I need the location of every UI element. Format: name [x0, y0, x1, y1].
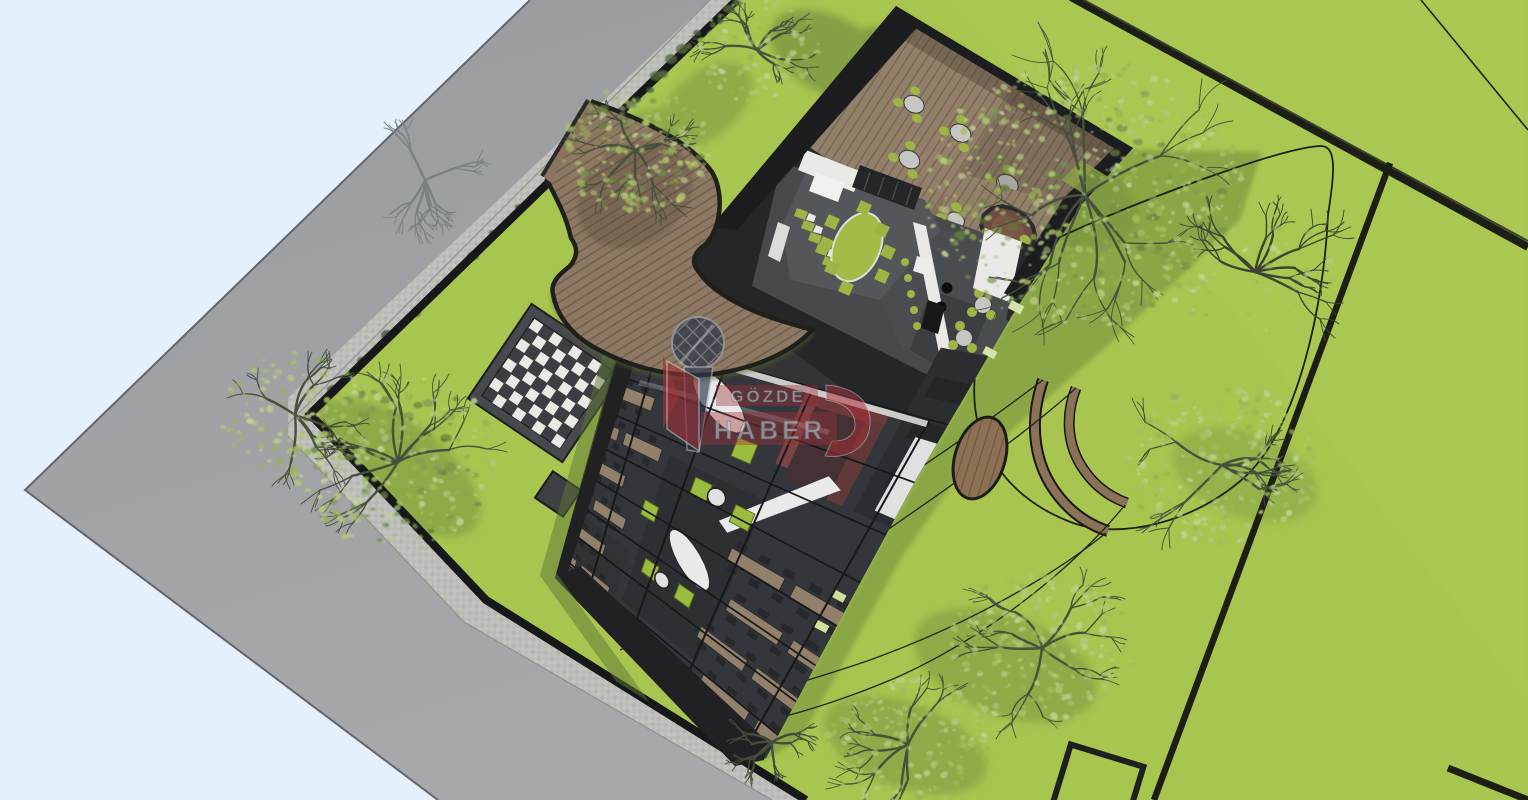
svg-text:GÖZDE: GÖZDE [730, 387, 805, 406]
svg-text:HABER: HABER [714, 415, 826, 445]
